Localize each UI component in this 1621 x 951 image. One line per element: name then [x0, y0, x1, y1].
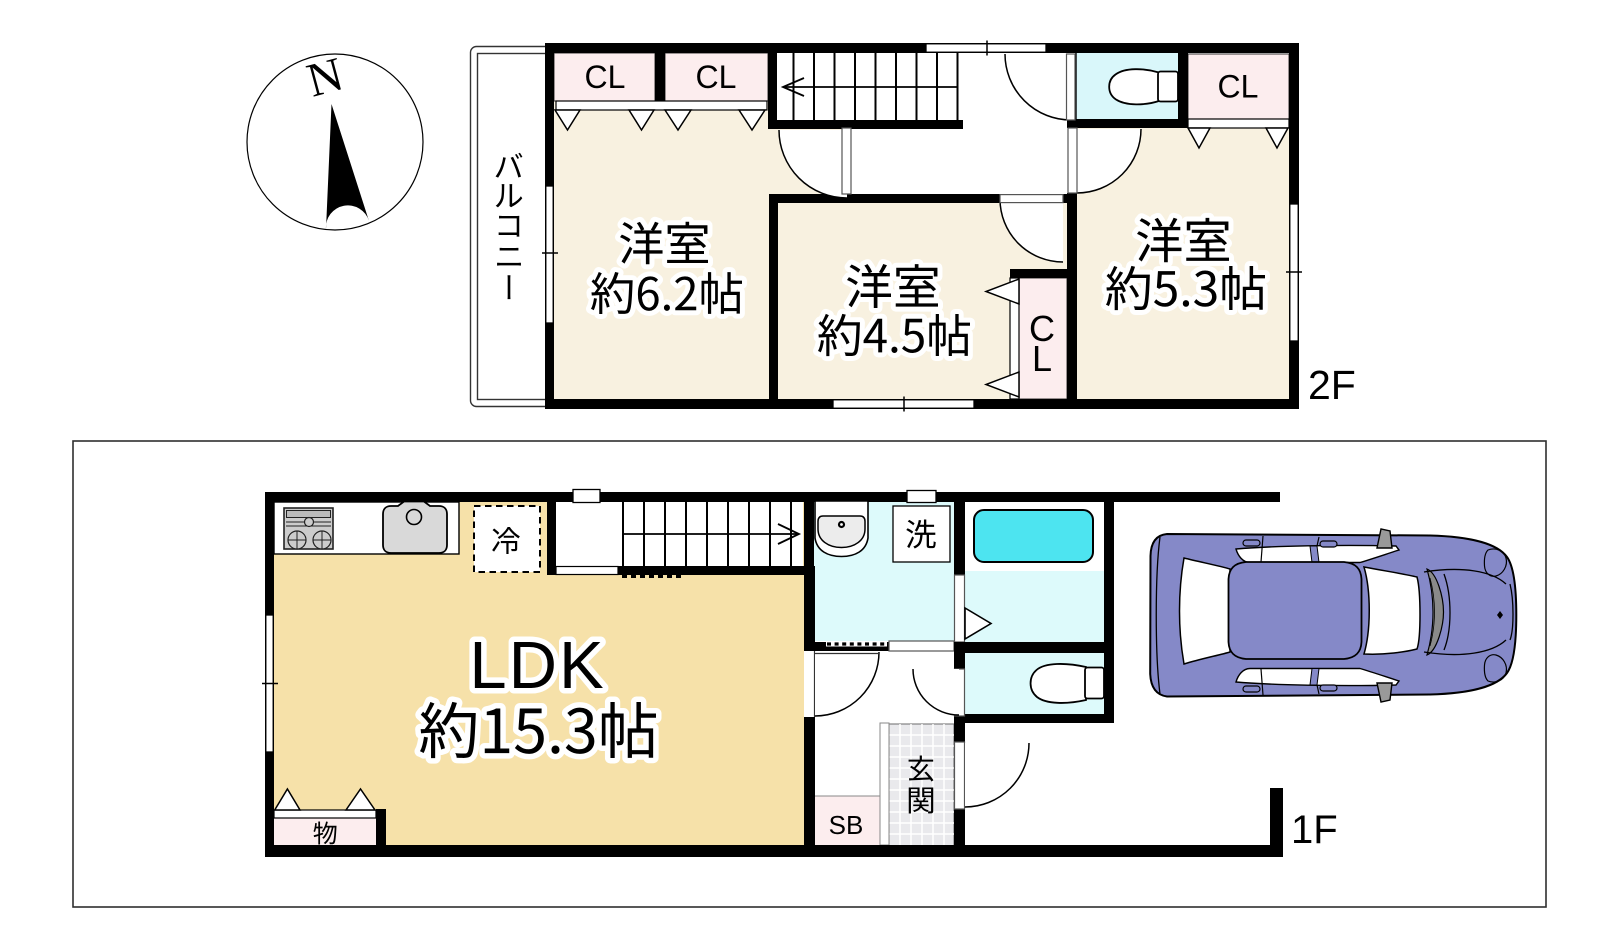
svg-text:2F: 2F [1308, 362, 1356, 408]
svg-text:CL: CL [585, 59, 626, 95]
svg-text:CL: CL [696, 59, 737, 95]
svg-text:CL: CL [1218, 69, 1259, 105]
svg-text:1F: 1F [1291, 808, 1338, 852]
svg-text:SB: SB [829, 810, 864, 840]
svg-text:L: L [1032, 338, 1052, 379]
svg-text:LDK: LDK [469, 628, 605, 703]
